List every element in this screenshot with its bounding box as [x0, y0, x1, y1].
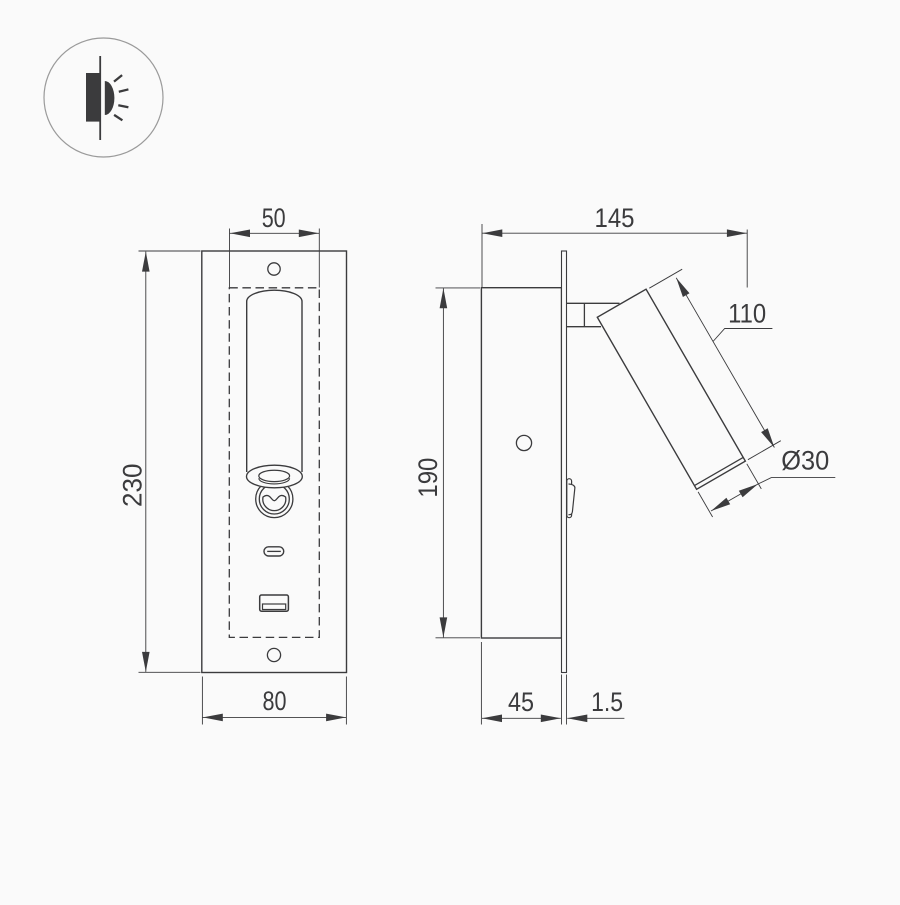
svg-text:Ø30: Ø30 — [781, 445, 829, 475]
svg-text:190: 190 — [413, 458, 443, 498]
svg-text:50: 50 — [262, 203, 286, 233]
svg-text:110: 110 — [728, 299, 766, 329]
svg-text:1.5: 1.5 — [591, 687, 623, 717]
svg-text:45: 45 — [508, 687, 534, 717]
svg-text:145: 145 — [595, 203, 635, 233]
svg-text:230: 230 — [118, 463, 148, 507]
svg-text:80: 80 — [263, 686, 287, 716]
